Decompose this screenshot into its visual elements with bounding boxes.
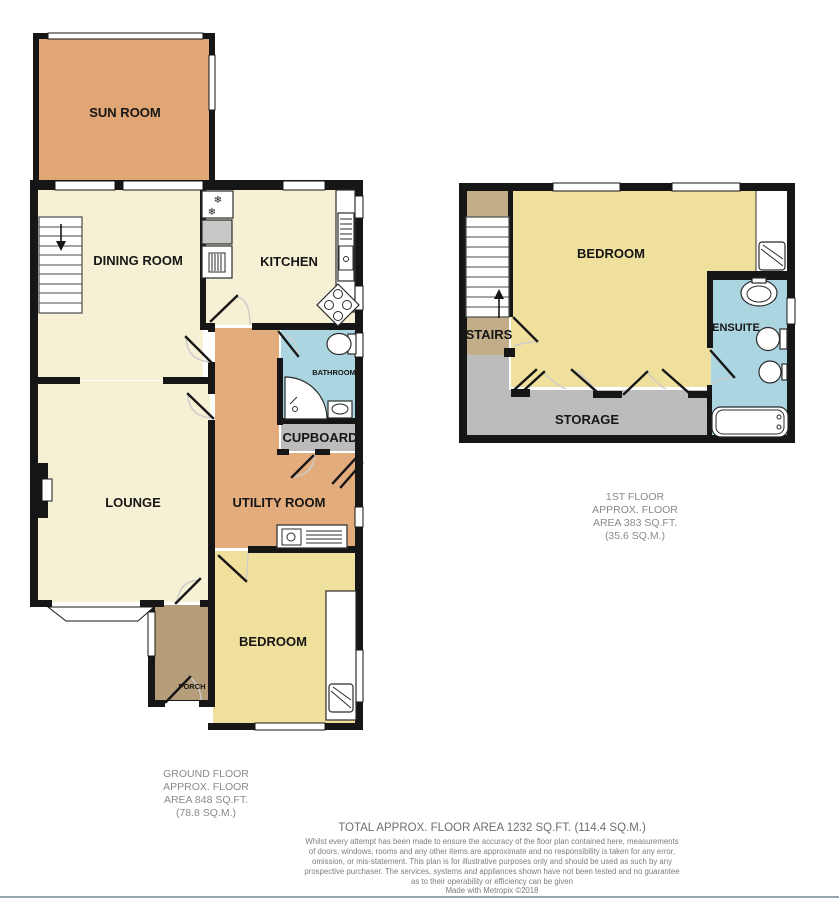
ensuite-toilet-cistern — [780, 329, 787, 349]
bed-icon-first — [759, 242, 785, 270]
chimney-recess — [42, 479, 52, 501]
ground-bedroom-label: BEDROOM — [239, 634, 307, 649]
porch-label: PORCH — [178, 682, 205, 691]
snowflake-icon: ❄ — [208, 207, 216, 218]
kitchen-label: KITCHEN — [260, 254, 318, 269]
disclaimer-line5: as to their operability or efficiency ca… — [411, 877, 573, 886]
first-caption-line4: (35.6 SQ.M.) — [605, 530, 665, 542]
appliance-icon — [202, 220, 232, 244]
first-bedroom-label: BEDROOM — [577, 246, 645, 261]
ensuite-basin-tap — [752, 278, 766, 283]
floorplan-page: ❄ ❄ — [0, 0, 839, 900]
first-caption-line3: AREA 383 SQ.FT. — [593, 517, 677, 529]
lounge-label: LOUNGE — [105, 495, 161, 510]
sun-room-door-opening — [123, 181, 203, 190]
disclaimer-line3: omission, or mis-statement. This plan is… — [312, 857, 672, 866]
first-caption-line1: 1ST FLOOR — [606, 491, 665, 503]
floorplan-canvas: ❄ ❄ — [0, 0, 839, 900]
storage-label: STORAGE — [555, 412, 619, 427]
bidet-icon — [759, 361, 781, 383]
bedroom-bottom-window — [255, 723, 325, 730]
first-top-window-1 — [553, 183, 620, 191]
first-caption-line2: APPROX. FLOOR — [592, 504, 678, 516]
bottom-rule — [0, 896, 839, 898]
ground-caption-line1: GROUND FLOOR — [163, 768, 249, 780]
ground-caption-line4: (78.8 SQ.M.) — [176, 807, 236, 819]
first-top-window-2 — [672, 183, 740, 191]
dining-room-label: DINING ROOM — [93, 253, 183, 268]
bath-icon — [712, 407, 788, 437]
sun-room-side-window — [209, 55, 215, 110]
ensuite-toilet-icon — [757, 328, 780, 351]
first-room-fills — [466, 189, 788, 437]
disclaimer-line1: Whilst every attempt has been made to en… — [305, 837, 678, 846]
porch-side-window — [148, 612, 155, 656]
porch-door-opening — [165, 701, 199, 707]
ensuite-label: ENSUITE — [712, 322, 760, 334]
disclaimer-line2: of doors, windows, rooms and any other i… — [309, 847, 675, 856]
ground-caption-line3: AREA 848 SQ.FT. — [164, 794, 248, 806]
ensuite-window — [787, 298, 795, 324]
ground-floor-plan: ❄ ❄ — [30, 33, 363, 730]
kitchen-right-window-1 — [355, 196, 363, 218]
toilet-icon — [327, 334, 351, 355]
utility-room-label: UTILITY ROOM — [233, 495, 326, 510]
metropix-credit: Made with Metropix ©2018 — [446, 886, 539, 895]
first-floor-plan: BEDROOM STAIRS ENSUITE STORAGE — [459, 183, 795, 443]
sun-room-top-window — [48, 33, 203, 39]
bidet-tap — [782, 364, 787, 380]
first-stairs — [466, 217, 509, 318]
cupboard-label: CUPBOARD — [282, 430, 357, 445]
ground-caption-line2: APPROX. FLOOR — [163, 781, 249, 793]
snowflake-icon: ❄ — [214, 195, 222, 206]
lounge-area — [38, 381, 210, 602]
total-area-label: TOTAL APPROX. FLOOR AREA 1232 SQ.FT. (11… — [338, 822, 646, 834]
utility-sink-icon — [277, 525, 347, 548]
stairs-label: STAIRS — [466, 327, 513, 342]
disclaimer-line4: prospective purchaser. The services, sys… — [304, 867, 679, 876]
footer-text: TOTAL APPROX. FLOOR AREA 1232 SQ.FT. (11… — [304, 822, 679, 895]
bathroom-label: BATHROOM — [312, 368, 356, 377]
sun-room-label: SUN ROOM — [89, 105, 161, 120]
kitchen-sink-icon — [338, 213, 354, 281]
ground-stairs — [39, 217, 82, 313]
sun-room-bottom-window — [55, 181, 115, 190]
bay-window — [48, 607, 154, 621]
bed-icon-ground — [326, 591, 356, 720]
oven-icon — [202, 246, 232, 278]
kitchen-top-window — [283, 181, 325, 190]
utility-window — [355, 507, 363, 527]
